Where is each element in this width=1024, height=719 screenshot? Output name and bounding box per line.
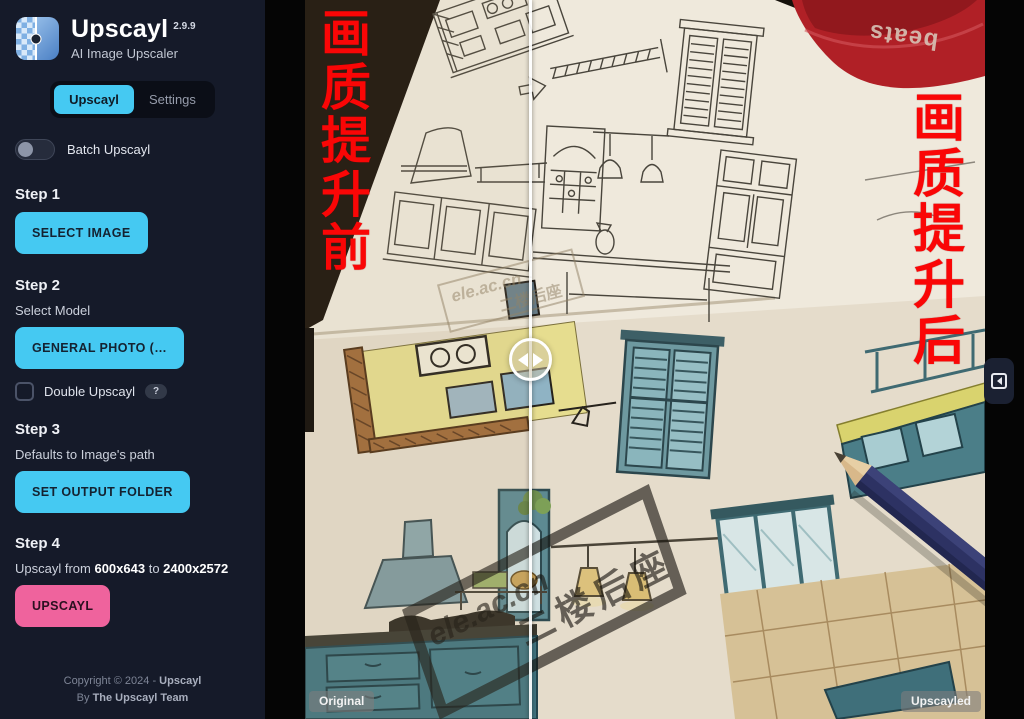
app-title-block: Upscayl 2.9.9 AI Image Upscaler xyxy=(71,17,196,61)
original-badge: Original xyxy=(309,691,374,712)
copyright-text: Copyright © 2024 - xyxy=(64,675,160,687)
toggle-knob xyxy=(18,142,33,157)
from-size: 600x643 xyxy=(94,561,145,576)
copyright-brand: Upscayl xyxy=(159,675,201,687)
panel-collapse-icon xyxy=(991,373,1007,389)
select-image-button[interactable]: SELECT IMAGE xyxy=(15,212,148,254)
compare-slider-handle[interactable] xyxy=(509,338,552,381)
sidebar: Upscayl 2.9.9 AI Image Upscaler Upscayl … xyxy=(0,0,265,719)
set-output-folder-button[interactable]: SET OUTPUT FOLDER xyxy=(15,471,190,513)
step3-title: Step 3 xyxy=(15,421,250,438)
byline-team: The Upscayl Team xyxy=(93,692,189,704)
upscayl-logo-icon xyxy=(16,17,59,60)
size-caption-to: to xyxy=(145,561,163,576)
logo-slider-dot xyxy=(30,33,41,44)
upscayl-size-caption: Upscayl from 600x643 to 2400x2572 xyxy=(15,561,250,576)
preview-image: beats ele.ac.cn 二楼后座 xyxy=(305,0,985,719)
double-upscayl-help-icon[interactable]: ? xyxy=(145,384,167,399)
size-caption-prefix: Upscayl from xyxy=(15,561,94,576)
view-tabs: Upscayl Settings xyxy=(50,81,215,118)
byline-prefix: By xyxy=(77,692,93,704)
app-version: 2.9.9 xyxy=(173,21,195,32)
output-path-caption: Defaults to Image's path xyxy=(15,447,250,462)
sketch-photo-illustration: beats ele.ac.cn 二楼后座 xyxy=(305,0,985,719)
sidebar-footer: Copyright © 2024 - Upscayl By The Upscay… xyxy=(0,661,265,719)
double-upscayl-checkbox[interactable] xyxy=(15,382,34,401)
model-select-dropdown[interactable]: GENERAL PHOTO (… xyxy=(15,327,184,369)
open-side-panel-button[interactable] xyxy=(984,358,1014,404)
tab-settings[interactable]: Settings xyxy=(134,85,211,114)
double-upscayl-label: Double Upscayl xyxy=(44,384,135,399)
tab-upscayl[interactable]: Upscayl xyxy=(54,85,134,114)
batch-upscayl-toggle[interactable] xyxy=(15,139,55,160)
upscayl-app-window: Upscayl 2.9.9 AI Image Upscaler Upscayl … xyxy=(0,0,1024,719)
to-size: 2400x2572 xyxy=(163,561,228,576)
app-brand: Upscayl 2.9.9 AI Image Upscaler xyxy=(0,0,265,67)
slider-arrow-right-icon xyxy=(533,353,543,367)
step1-title: Step 1 xyxy=(15,186,250,203)
select-model-caption: Select Model xyxy=(15,303,250,318)
upscayl-run-button[interactable]: UPSCAYL xyxy=(15,585,110,627)
app-title: Upscayl xyxy=(71,17,168,42)
slider-arrow-left-icon xyxy=(518,353,528,367)
step2-title: Step 2 xyxy=(15,277,250,294)
step4-title: Step 4 xyxy=(15,535,250,552)
app-tagline: AI Image Upscaler xyxy=(71,46,196,61)
upscayled-badge: Upscayled xyxy=(901,691,981,712)
comparison-viewer: beats ele.ac.cn 二楼后座 xyxy=(265,0,1024,719)
batch-upscayl-label: Batch Upscayl xyxy=(67,142,150,157)
